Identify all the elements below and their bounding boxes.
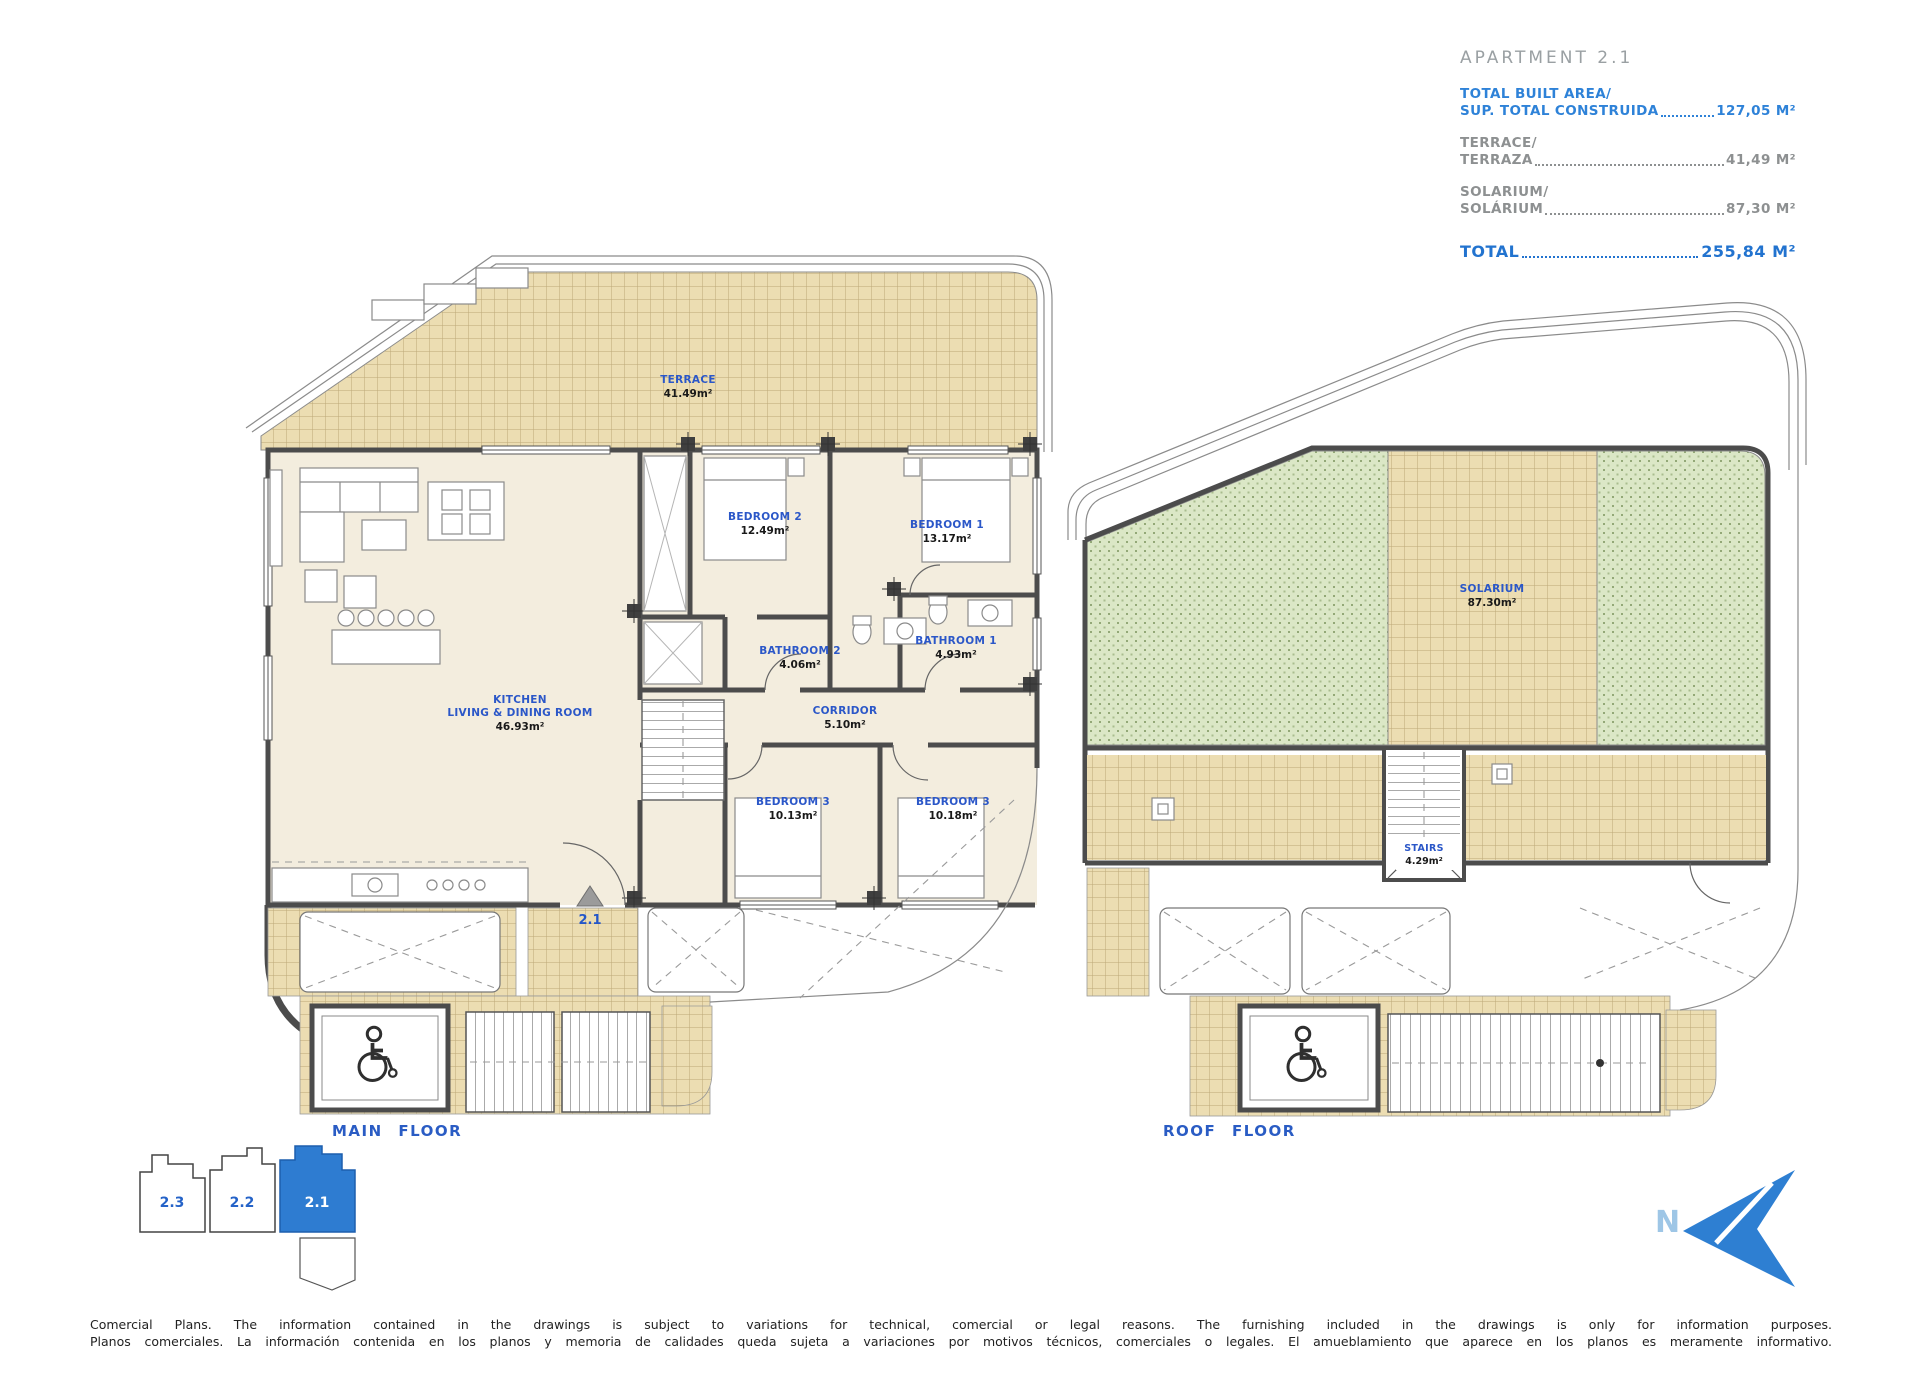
row-label-es: TERRAZA bbox=[1460, 152, 1533, 169]
key-unit-2-3 bbox=[140, 1155, 205, 1232]
room-area: 4.29m² bbox=[1405, 856, 1443, 867]
room-area: 13.17m² bbox=[923, 533, 972, 545]
planter-box bbox=[476, 268, 528, 288]
room-label: BEDROOM 3 bbox=[756, 796, 830, 808]
dot-leader bbox=[1535, 164, 1724, 166]
internal-stairs bbox=[642, 700, 724, 800]
room-area: 4.93m² bbox=[935, 649, 977, 661]
row-label: TOTAL BUILT AREA/ bbox=[1460, 86, 1796, 103]
row-label: TERRACE/ bbox=[1460, 135, 1796, 152]
planter-box bbox=[372, 300, 424, 320]
key-unit-label: 2.3 bbox=[160, 1195, 185, 1211]
dot-leader bbox=[1545, 213, 1724, 215]
room-area: 41.49m² bbox=[664, 388, 713, 400]
disclaimer-line-en: Comercial Plans. The information contain… bbox=[90, 1316, 1832, 1333]
room-label: KITCHEN bbox=[493, 694, 547, 706]
roof-floor-plan: STAIRS 4.29m² SOLARIUM 87.30m² bbox=[1060, 258, 1820, 1128]
row-label-es: SUP. TOTAL CONSTRUIDA bbox=[1460, 103, 1659, 120]
row-label: SOLARIUM/ bbox=[1460, 184, 1796, 201]
room-label: STAIRS bbox=[1404, 843, 1443, 854]
row-label-es: SOLÁRIUM bbox=[1460, 201, 1543, 218]
row-value: 41,49 M² bbox=[1726, 152, 1796, 169]
room-label: BEDROOM 3 bbox=[916, 796, 990, 808]
apartment-title: APARTMENT 2.1 bbox=[1460, 48, 1796, 68]
room-label: BEDROOM 2 bbox=[728, 511, 802, 523]
solarium-row: SOLARIUM/ SOLÁRIUM 87,30 M² bbox=[1460, 184, 1796, 218]
main-floor-plan: 2.1 TERRACE 41.49m² BEDROOM 2 12.49m² BE… bbox=[250, 258, 1050, 1128]
void-area bbox=[300, 912, 500, 992]
room-area: 10.13m² bbox=[769, 810, 818, 822]
room-area: 46.93m² bbox=[496, 721, 545, 733]
room-label: BEDROOM 1 bbox=[910, 519, 984, 531]
stair-run bbox=[1388, 1014, 1660, 1112]
main-floor-caption: MAIN FLOOR bbox=[332, 1122, 462, 1140]
key-unit-2-1-selected bbox=[280, 1146, 355, 1232]
row-value: 127,05 M² bbox=[1716, 103, 1796, 120]
room-label: SOLARIUM bbox=[1460, 583, 1525, 595]
roof-floor-caption: ROOF FLOOR bbox=[1163, 1122, 1296, 1140]
walkway-tiles bbox=[662, 1006, 712, 1106]
room-area: 4.06m² bbox=[779, 659, 821, 671]
north-arrow bbox=[1630, 1150, 1820, 1300]
terrace-row: TERRACE/ TERRAZA 41,49 M² bbox=[1460, 135, 1796, 169]
room-area: 10.18m² bbox=[929, 810, 978, 822]
key-unit-label-selected: 2.1 bbox=[305, 1195, 330, 1211]
key-core-outline bbox=[300, 1238, 355, 1290]
lower-roof-outline bbox=[1680, 870, 1798, 1010]
room-label: CORRIDOR bbox=[813, 705, 878, 717]
row-value: 87,30 M² bbox=[1726, 201, 1796, 218]
north-arrow-icon bbox=[1683, 1170, 1795, 1287]
terrace-region bbox=[261, 272, 1037, 450]
roof-stairwell: STAIRS 4.29m² bbox=[1384, 748, 1464, 880]
grass-region bbox=[1597, 451, 1765, 745]
grass-region bbox=[1087, 451, 1388, 745]
floor-plan-sheet: APARTMENT 2.1 TOTAL BUILT AREA/ SUP. TOT… bbox=[0, 0, 1920, 1375]
entrance-unit-label: 2.1 bbox=[578, 913, 601, 928]
walkway-tiles bbox=[1087, 868, 1149, 996]
void-area bbox=[1160, 908, 1290, 994]
door-swing bbox=[1690, 863, 1730, 903]
walkway-tiles bbox=[1666, 1010, 1716, 1110]
room-label: TERRACE bbox=[660, 374, 716, 386]
area-info-panel: APARTMENT 2.1 TOTAL BUILT AREA/ SUP. TOT… bbox=[1460, 48, 1796, 261]
total-built-area-row: TOTAL BUILT AREA/ SUP. TOTAL CONSTRUIDA … bbox=[1460, 86, 1796, 120]
room-label: BATHROOM 1 bbox=[915, 635, 997, 647]
room-label: BATHROOM 2 bbox=[759, 645, 841, 657]
dot-leader bbox=[1661, 115, 1715, 117]
room-label: LIVING & DINING ROOM bbox=[447, 707, 592, 719]
room-area: 5.10m² bbox=[824, 719, 866, 731]
room-area: 87.30m² bbox=[1468, 597, 1517, 609]
disclaimer: Comercial Plans. The information contain… bbox=[90, 1316, 1832, 1350]
key-unit-label: 2.2 bbox=[230, 1195, 255, 1211]
key-plan: 2.3 2.2 2.1 bbox=[110, 1140, 390, 1300]
room-area: 12.49m² bbox=[741, 525, 790, 537]
disclaimer-line-es: Planos comerciales. La información conte… bbox=[90, 1333, 1832, 1350]
planter-box bbox=[424, 284, 476, 304]
key-unit-2-2 bbox=[210, 1148, 275, 1232]
